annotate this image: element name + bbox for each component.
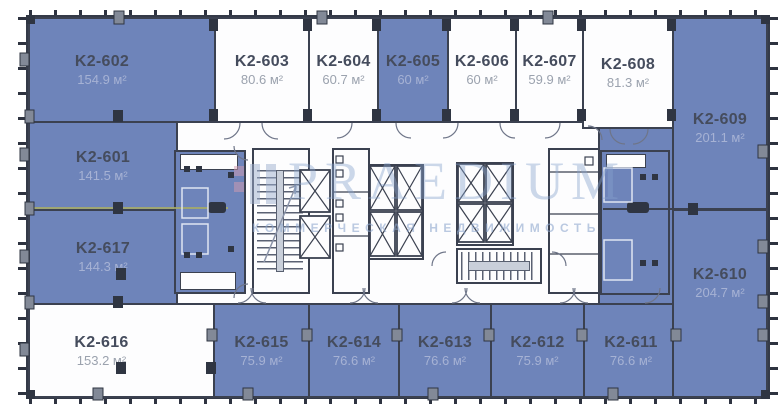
room-k2-615[interactable]: K2-615 75.9 м² [213,303,310,398]
room-k2-609[interactable]: K2-609 201.1 м² [672,17,768,211]
room-k2-611[interactable]: K2-611 76.6 м² [583,303,679,398]
elevator-bank-a [368,164,424,260]
window-ticks-right [770,17,778,397]
section-handle [208,202,226,213]
room-k2-613[interactable]: K2-613 76.6 м² [398,303,492,398]
elevator-bank-b [456,162,514,246]
room-k2-614[interactable]: K2-614 76.6 м² [308,303,400,398]
section-line [28,207,228,209]
window-ticks-left [18,17,26,397]
wc-block-right [600,150,670,295]
room-k2-616[interactable]: K2-616 153.2 м² [28,303,215,398]
wc-block-center [332,148,370,294]
room-k2-605[interactable]: K2-605 60 м² [377,17,449,123]
room-k2-604[interactable]: K2-604 60.7 м² [308,17,379,123]
room-k2-608[interactable]: K2-608 81.3 м² [582,17,674,129]
room-k2-603[interactable]: K2-603 80.6 м² [214,17,310,123]
room-k2-607[interactable]: K2-607 59.9 м² [515,17,584,123]
shaft [606,154,646,168]
shaft [180,272,236,290]
room-k2-610[interactable]: K2-610 204.7 м² [672,209,768,398]
room-k2-617[interactable]: K2-617 144.3 м² [28,209,178,305]
stair-stringer [276,170,284,272]
utility-block [548,148,600,294]
room-k2-612[interactable]: K2-612 75.9 м² [490,303,585,398]
room-k2-602[interactable]: K2-602 154.9 м² [28,17,216,123]
shaft [180,154,238,170]
section-handle [627,202,649,213]
stair-landing [468,261,530,271]
room-k2-606[interactable]: K2-606 60 м² [447,17,517,123]
room-k2-601[interactable]: K2-601 141.5 м² [28,121,178,211]
floor-plan: K2-602 154.9 м² K2-603 80.6 м² K2-604 60… [0,0,781,411]
